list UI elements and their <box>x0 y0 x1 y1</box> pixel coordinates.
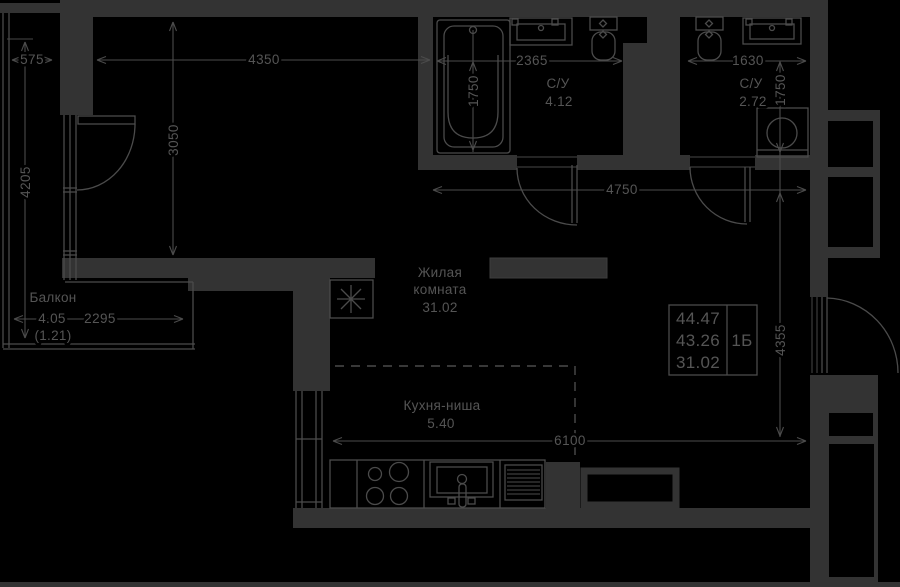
shaft-box-bottom <box>584 471 676 505</box>
shaft-opening-3 <box>829 413 873 436</box>
info-box: 44.47 43.26 31.02 1Б <box>669 305 757 375</box>
bath1-sink-icon <box>510 18 572 45</box>
dim-balcony-width: 2295 <box>84 311 116 326</box>
bath2-sink-icon <box>743 18 801 44</box>
wall-left-block <box>60 0 93 115</box>
info-value-middle: 43.26 <box>676 331 720 350</box>
balcony-door-leaf <box>78 116 135 124</box>
balcony-name: Балкон <box>29 290 76 305</box>
wall-between-baths <box>623 43 680 170</box>
fridge-icon <box>505 465 542 500</box>
dim-bath2-depth: 1750 <box>773 74 788 106</box>
balcony-door-arc <box>77 124 135 190</box>
balcony-reduced-area: (1.21) <box>34 328 71 343</box>
living-room-area: 31.02 <box>422 300 457 315</box>
bath2-toilet-icon <box>696 17 723 60</box>
label-bath1: С/У 4.12 <box>545 76 572 109</box>
wall-living-bottom-band <box>62 258 375 278</box>
wall-balcony-top <box>0 3 63 13</box>
bath2-area: 2.72 <box>739 94 766 109</box>
dim-bath2-width: 1630 <box>732 53 764 68</box>
bath1-name: С/У <box>547 76 570 91</box>
living-room-name-line2: комната <box>413 282 466 297</box>
kitchen-name: Кухня-ниша <box>404 398 481 413</box>
kitchen-area: 5.40 <box>427 416 454 431</box>
dim-bath1-depth: 1750 <box>466 75 481 107</box>
shaft-opening-4 <box>829 444 874 577</box>
wall-living-bottom-band2 <box>188 278 330 291</box>
wall-kitchen-left <box>293 291 330 391</box>
balcony-door-window <box>63 115 135 280</box>
bath2-door-arc <box>690 167 747 224</box>
wall-bottom <box>293 508 810 528</box>
label-bath2: С/У 2.72 <box>739 76 766 109</box>
floor-plan: 575 4350 2365 1630 1750 1750 3050 4205 4… <box>0 0 900 587</box>
entrance-door <box>812 297 898 373</box>
shaft-opening-1 <box>828 121 873 167</box>
kitchen-zone-dashed-line <box>335 366 575 460</box>
info-value-top: 44.47 <box>676 309 720 328</box>
washing-machine-icon <box>757 108 808 157</box>
balcony-area: 4.05 <box>38 311 65 326</box>
wall-bath-bottom-2 <box>577 155 690 170</box>
bath2-name: С/У <box>740 76 763 91</box>
stove-icon <box>367 463 409 505</box>
info-value-bottom: 31.02 <box>676 353 720 372</box>
bath1-door-arc <box>517 168 577 225</box>
bath1-toilet-icon <box>590 17 617 60</box>
wall-bottom-edge <box>0 582 900 587</box>
dim-balcony-depth: 575 <box>20 52 44 67</box>
info-unit-type: 1Б <box>731 331 752 350</box>
wall-bath-bottom-1 <box>418 155 517 170</box>
kitchen-window <box>296 391 322 508</box>
ventilation-icon <box>330 280 373 318</box>
entrance-door-arc <box>827 298 898 373</box>
dim-living-depth: 3050 <box>166 124 181 156</box>
living-room-name-line1: Жилая <box>418 265 462 280</box>
wall-bath1-left <box>418 17 433 170</box>
label-kitchen: Кухня-ниша 5.40 <box>404 398 481 431</box>
label-living-room: Жилая комната 31.02 <box>413 265 466 315</box>
dim-living-width: 4350 <box>248 52 280 67</box>
bath1-area: 4.12 <box>545 94 572 109</box>
dimension-lines <box>7 22 806 445</box>
wall-between-baths-upper <box>647 17 680 43</box>
dim-bath1-width: 2365 <box>516 53 548 68</box>
dim-right-span: 4355 <box>773 324 788 356</box>
wall-kitchen-right-block <box>546 462 580 508</box>
wall-top <box>63 0 828 17</box>
dim-hall-width: 4750 <box>606 182 638 197</box>
label-balcony: Балкон 4.05 (1.21) <box>29 290 76 343</box>
wardrobe-block <box>490 258 607 278</box>
floor-plan-page: 575 4350 2365 1630 1750 1750 3050 4205 4… <box>0 0 900 587</box>
bath1-door <box>517 157 577 225</box>
dim-bottom-span: 6100 <box>554 433 586 448</box>
kitchen-sink-icon <box>430 462 493 507</box>
dim-balcony-length: 4205 <box>18 166 33 198</box>
shaft-opening-2 <box>828 177 873 247</box>
